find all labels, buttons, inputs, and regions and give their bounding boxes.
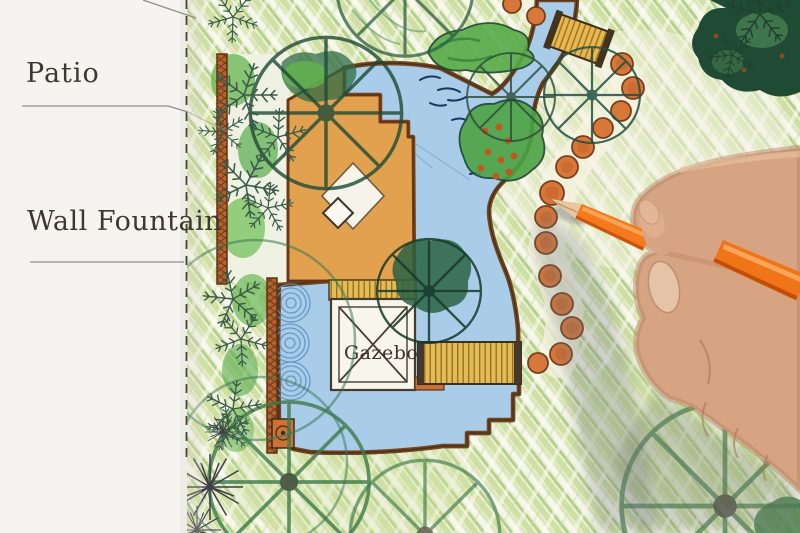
dock: [418, 342, 521, 384]
photo-garden-plan: Patio Wall Fountain Gazebo: [0, 0, 800, 533]
timber-wall-upper: [217, 54, 227, 284]
gazebo-label: Gazebo: [344, 342, 418, 364]
patio-label: Patio: [26, 58, 100, 89]
garden-plan-drawing: [0, 0, 800, 533]
foliage-gazebo-tree: [392, 239, 471, 313]
wall-fountain-label: Wall Fountain: [27, 206, 222, 237]
